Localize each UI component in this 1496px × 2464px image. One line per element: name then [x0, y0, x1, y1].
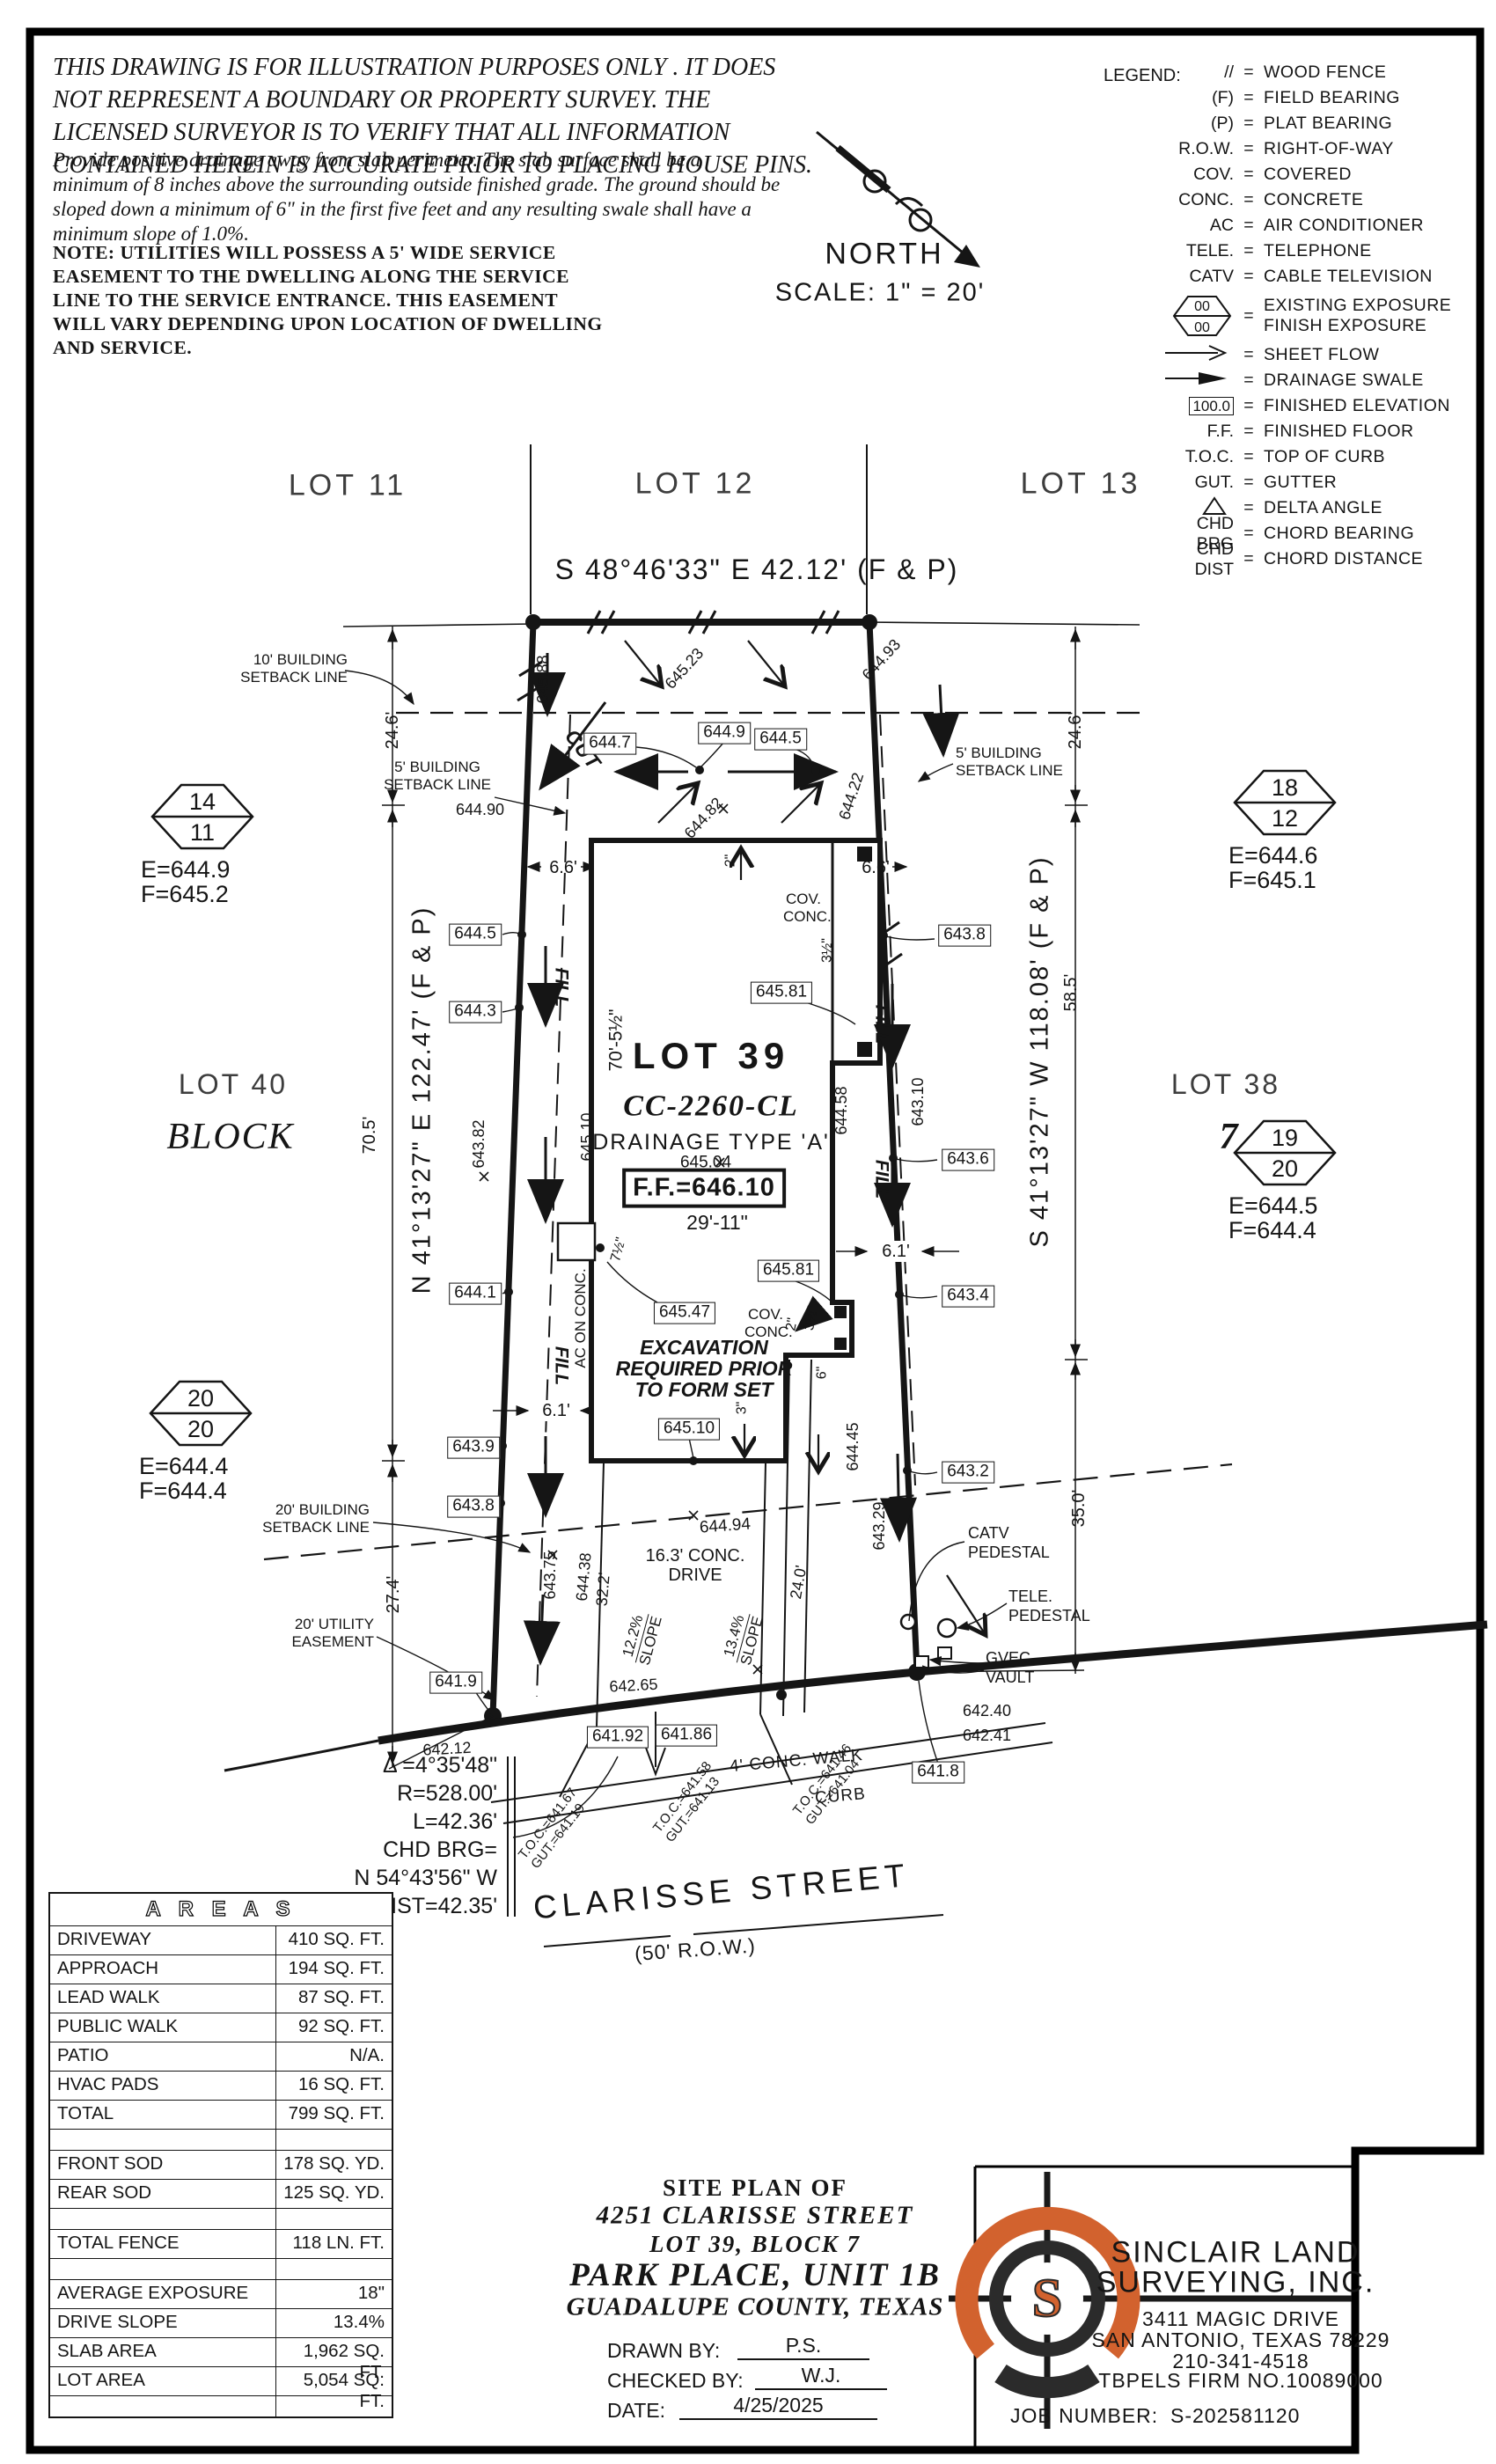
finished-elevation-box: 643.8 — [447, 1496, 500, 1518]
street-curb-line — [378, 1624, 1487, 1741]
finished-elevation-box: 643.9 — [447, 1437, 500, 1459]
dim-label: 6.6' — [549, 857, 577, 878]
block-number-label: 7 — [1220, 1115, 1238, 1159]
legend-row: R.O.W.=RIGHT-OF-WAY — [1160, 136, 1451, 162]
table-row: TOTAL FENCE118 LN. FT. — [50, 2229, 392, 2258]
finished-elevation-box: 645.10 — [658, 1419, 720, 1441]
exposure-marker-existing: 19 — [1272, 1124, 1298, 1152]
spot-elevation-label: 645.10 — [578, 1112, 598, 1161]
step-dim: 3" — [733, 1402, 750, 1415]
drainage-type-label: DRAINAGE TYPE 'A' — [592, 1129, 830, 1155]
house-depth-dim: 70'-5½" — [605, 1008, 627, 1071]
spot-elevation-label: 642.65 — [609, 1676, 658, 1697]
company-firm-number: TBPELS FIRM NO.10089000 — [1098, 2369, 1382, 2394]
legend-row: //=WOOD FENCE — [1160, 60, 1451, 85]
finished-elevation-box: 644.5 — [754, 729, 807, 751]
company-name: SURVEYING, INC. — [1096, 2265, 1375, 2301]
setback-10-label: 10' BUILDINGSETBACK LINE — [220, 651, 348, 687]
finish-exposure-value: F=644.4 — [1228, 1216, 1316, 1244]
porch-dim: 6" — [813, 1367, 830, 1380]
lot-40-label: LOT 40 — [179, 1067, 288, 1101]
dim-label: 24.6' — [382, 712, 403, 750]
lot-11-label: LOT 11 — [289, 468, 407, 504]
job-number-value: S-202581120 — [1170, 2404, 1300, 2429]
spot-elevation-label: 643.29 — [870, 1501, 890, 1550]
finished-elevation-box: 644.5 — [449, 924, 502, 946]
block-word-label: BLOCK — [166, 1115, 294, 1159]
finished-elevation-box: 645.81 — [751, 982, 812, 1004]
finished-floor-box: F.F.=646.10 — [622, 1169, 786, 1208]
dim-label: 32.2' — [593, 1572, 615, 1607]
legend-row: COV.=COVERED — [1160, 162, 1451, 187]
spot-elevation-label: 644.90 — [456, 801, 504, 820]
exposure-marker-finish: 20 — [1272, 1155, 1298, 1183]
table-row: LEAD WALK87 SQ. FT. — [50, 1984, 392, 2013]
covered-concrete-label: CONC. — [783, 908, 832, 926]
fill-label: FILL — [870, 1005, 892, 1044]
dim-label: 6.6' — [862, 857, 890, 878]
exposure-marker-existing: 18 — [1272, 774, 1298, 802]
dim-label: 27.4' — [383, 1576, 404, 1614]
legend-row: TELE.=TELEPHONE — [1160, 238, 1451, 264]
finished-elevation-box: 643.4 — [942, 1286, 994, 1308]
disclaimer-paragraph-2: Provide positive drainage away from slab… — [53, 148, 780, 246]
covered-concrete-label: CONC. — [744, 1324, 793, 1341]
excavation-note: TO FORM SET — [635, 1378, 774, 1403]
scale-label: SCALE: 1" = 20' — [775, 278, 985, 309]
exposure-marker-finish: 12 — [1272, 804, 1298, 832]
table-row — [50, 2208, 392, 2229]
covered-concrete-label: COV. — [786, 891, 821, 908]
exposure-marker-existing: 20 — [187, 1384, 214, 1412]
exposure-hexagon-icon: 0000 — [1160, 293, 1234, 339]
wood-fence-symbol: // — [1160, 62, 1234, 83]
title-line: PARK PLACE, UNIT 1B — [569, 2256, 941, 2295]
rear-bearing-label: S 48°46'33" E 42.12' (F & P) — [555, 553, 959, 586]
fill-label: FILL — [550, 1346, 572, 1385]
spot-elevation-label: 645.88 — [534, 655, 554, 703]
finished-elevation-box: 644.9 — [698, 722, 751, 744]
table-row: TOTAL799 SQ. FT. — [50, 2100, 392, 2129]
lot-38-label: LOT 38 — [1171, 1067, 1280, 1101]
legend-row-exposure: 0000 = EXISTING EXPOSUREFINISH EXPOSURE — [1160, 290, 1451, 342]
fill-label: FILL — [550, 968, 572, 1007]
table-row — [50, 2258, 392, 2279]
tele-pedestal-icon — [938, 1619, 956, 1637]
spot-elevation-label: 642.40 — [963, 1702, 1011, 1721]
left-bearing-label: N 41°13'27" E 122.47' (F & P) — [407, 906, 438, 1294]
table-row: SLAB AREA1,962 SQ. FT. — [50, 2337, 392, 2366]
north-label: NORTH — [825, 237, 943, 273]
finished-elevation-box: 643.6 — [942, 1149, 994, 1171]
title-line: SITE PLAN OF — [663, 2174, 847, 2202]
lot-13-label: LOT 13 — [1021, 466, 1141, 502]
legend-row: CATV=CABLE TELEVISION — [1160, 264, 1451, 290]
site-plan-sheet: THIS DRAWING IS FOR ILLUSTRATION PURPOSE… — [0, 0, 1496, 2464]
drawn-by-value: P.S. — [737, 2334, 869, 2360]
drawn-by-label: DRAWN BY: — [607, 2339, 720, 2364]
finished-elevation-box: 643.2 — [942, 1462, 994, 1484]
right-bearing-label: S 41°13'27" W 118.08' (F & P) — [1025, 855, 1056, 1247]
table-row: REAR SOD125 SQ. YD. — [50, 2179, 392, 2208]
step-dim: 2" — [722, 854, 738, 868]
finished-elevation-symbol: 100.0 — [1189, 397, 1234, 415]
catv-pedestal-icon — [901, 1615, 915, 1629]
dim-label: 70.5' — [359, 1117, 380, 1155]
spot-elevation-label: 645.04 — [680, 1154, 731, 1174]
spot-elevation-label: 643.10 — [909, 1077, 928, 1126]
table-row: PUBLIC WALK92 SQ. FT. — [50, 2013, 392, 2042]
spot-elevation-label: 644.94 — [699, 1515, 752, 1539]
exposure-marker-existing: 14 — [189, 788, 216, 816]
date-value: 4/25/2025 — [679, 2394, 877, 2420]
finished-elevation-box: 645.81 — [758, 1260, 819, 1282]
dim-label: 24.6' — [1065, 712, 1086, 750]
areas-table: A R E A S DRIVEWAY410 SQ. FT. APPROACH19… — [48, 1892, 393, 2418]
job-number-label: JOB NUMBER: — [1010, 2404, 1158, 2429]
gvec-vault-icon — [938, 1647, 951, 1659]
utility-easement-label: 20' UTILITYEASEMENT — [246, 1616, 374, 1652]
svg-text:00: 00 — [1194, 299, 1210, 314]
spot-elevation-label: 643.82 — [470, 1119, 489, 1168]
finished-elevation-box: 644.7 — [583, 733, 636, 755]
legend-row: F.F.=FINISHED FLOOR — [1160, 419, 1451, 444]
legend-row: AC=AIR CONDITIONER — [1160, 213, 1451, 238]
legend-row: 100.0=FINISHED ELEVATION — [1160, 393, 1451, 419]
finished-elevation-box: 641.86 — [656, 1725, 717, 1747]
table-row: FRONT SOD178 SQ. YD. — [50, 2150, 392, 2179]
table-row — [50, 2129, 392, 2150]
areas-title: A R E A S — [50, 1894, 392, 1925]
checked-by-label: CHECKED BY: — [607, 2369, 744, 2394]
legend-row: GUT.=GUTTER — [1160, 470, 1451, 495]
table-row — [50, 2395, 392, 2416]
legend-row: CONC.=CONCRETE — [1160, 187, 1451, 213]
dim-label: 6.1' — [539, 1400, 573, 1421]
finished-elevation-box: 645.47 — [654, 1302, 715, 1324]
title-line: LOT 39, BLOCK 7 — [649, 2230, 861, 2258]
exposure-marker-finish: 11 — [190, 818, 215, 847]
setback-5-left-label: 5' BUILDINGSETBACK LINE — [380, 759, 495, 795]
table-row: HVAC PADS16 SQ. FT. — [50, 2071, 392, 2100]
legend-row: CHD DIST=CHORD DISTANCE — [1160, 546, 1451, 572]
house-width-dim: 29'-11" — [681, 1211, 753, 1236]
plan-number-label: CC-2260-CL — [623, 1089, 798, 1126]
table-row: DRIVEWAY410 SQ. FT. — [50, 1925, 392, 1954]
spot-elevation-label: 643.75 — [541, 1551, 561, 1599]
setback-20-label: 20' BUILDINGSETBACK LINE — [224, 1501, 370, 1537]
ac-on-conc-label: AC ON CONC. — [572, 1268, 590, 1368]
finish-exposure-value: F=645.1 — [1228, 866, 1316, 894]
table-row: APPROACH194 SQ. FT. — [50, 1954, 392, 1984]
setback-5-right-label: 5' BUILDINGSETBACK LINE — [956, 744, 1063, 781]
covered-concrete-label: COV. — [748, 1306, 783, 1324]
finish-exposure-value: F=645.2 — [141, 880, 229, 908]
tele-pedestal-label: TELE.PEDESTAL — [1008, 1588, 1090, 1625]
legend: //=WOOD FENCE (F)=FIELD BEARING (P)=PLAT… — [1160, 60, 1451, 572]
drainage-swale-arrow-icon — [1160, 370, 1234, 392]
legend-row: =SHEET FLOW — [1160, 342, 1451, 368]
finished-elevation-box: 643.8 — [938, 925, 991, 947]
table-row: LOT AREA5,054 SQ. FT. — [50, 2366, 392, 2395]
finished-elevation-box: 641.9 — [429, 1672, 482, 1694]
legend-row: =DRAINAGE SWALE — [1160, 368, 1451, 393]
legend-row: (F)=FIELD BEARING — [1160, 85, 1451, 111]
drive-label: 16.3' CONC. — [646, 1545, 745, 1566]
finished-elevation-box: 641.8 — [912, 1762, 964, 1784]
gvec-vault-icon — [915, 1656, 928, 1668]
legend-row: T.O.C.=TOP OF CURB — [1160, 444, 1451, 470]
finish-exposure-value: F=644.4 — [139, 1477, 227, 1505]
table-row: PATION/A. — [50, 2042, 392, 2071]
sheet-flow-arrow-icon — [1160, 345, 1234, 366]
lot-12-label: LOT 12 — [635, 466, 756, 502]
checked-by-value: W.J. — [755, 2364, 887, 2390]
svg-text:00: 00 — [1194, 320, 1210, 335]
finished-elevation-box: 641.92 — [587, 1727, 649, 1749]
date-label: DATE: — [607, 2399, 665, 2424]
table-row: AVERAGE EXPOSURE18" — [50, 2279, 392, 2308]
exposure-marker-finish: 20 — [187, 1415, 214, 1443]
utility-easement-note: NOTE: UTILITIES WILL POSSESS A 5' WIDE S… — [53, 241, 603, 360]
spot-elevation-label: 644.45 — [844, 1422, 863, 1470]
dim-label: 58.5' — [1060, 974, 1082, 1012]
dim-label: 6.1' — [879, 1241, 913, 1262]
ac-pad — [558, 1223, 595, 1260]
logo-letter: S — [1032, 2266, 1062, 2331]
fill-label: FILL — [870, 1160, 892, 1199]
porch-dim: 3½" — [818, 938, 835, 963]
spot-elevation-label: 642.41 — [963, 1727, 1011, 1746]
title-line: GUADALUPE COUNTY, TEXAS — [567, 2292, 944, 2323]
catv-pedestal-label: CATVPEDESTAL — [968, 1524, 1050, 1562]
spot-elevation-label: 644.58 — [832, 1086, 852, 1134]
lot-39-label: LOT 39 — [633, 1034, 789, 1078]
drive-label: DRIVE — [668, 1565, 722, 1586]
finished-elevation-box: 644.1 — [449, 1283, 502, 1305]
dim-label: 35.0' — [1068, 1490, 1089, 1528]
title-line: 4251 CLARISSE STREET — [597, 2201, 914, 2232]
finished-elevation-box: 644.3 — [449, 1001, 502, 1023]
legend-row: (P)=PLAT BEARING — [1160, 111, 1451, 136]
gvec-vault-label: GVEC.VAULT — [986, 1649, 1035, 1687]
table-row: DRIVE SLOPE13.4% — [50, 2308, 392, 2337]
